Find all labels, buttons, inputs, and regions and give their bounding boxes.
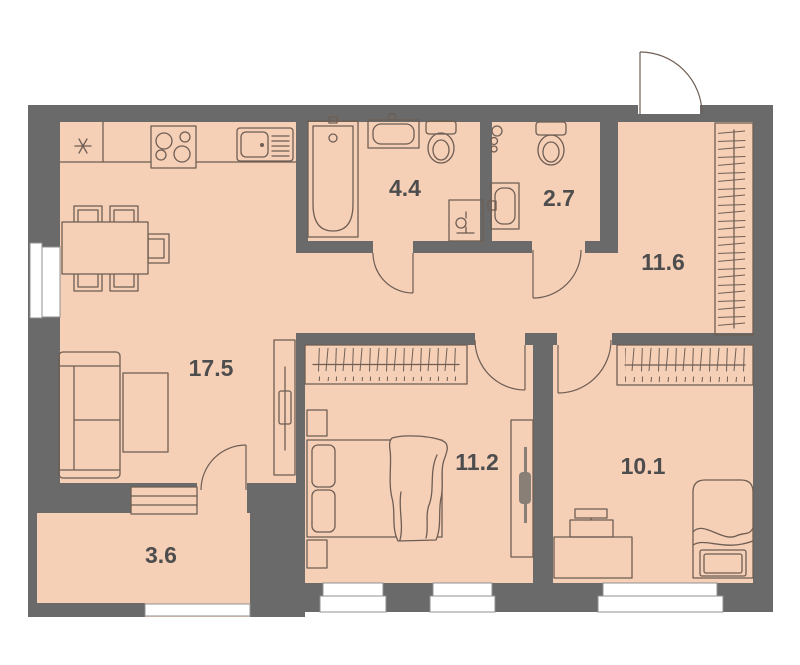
wall-bedroom1-bedroom2 [533, 345, 553, 583]
wall-bathroom-bottom-right [413, 241, 492, 253]
window-icon-bedroom1-a [320, 583, 386, 612]
balcony-door-opening [197, 483, 247, 513]
wardrobe-icon-bedroom2 [617, 345, 753, 385]
entrance-door-icon [640, 52, 702, 114]
window-icon-left-wall [30, 243, 60, 318]
room-label-toilet: 2.7 [543, 185, 575, 211]
wall-toilet-bottom-right [585, 241, 618, 253]
window-icon-balcony-glazing [145, 604, 250, 616]
room-label-hallway: 11.6 [641, 249, 685, 275]
balcony-cabinet-icon [131, 487, 197, 514]
wall-balcony-bottom [28, 603, 145, 617]
wall-living-bedroom1 [296, 333, 305, 483]
double-bed-icon [307, 436, 447, 541]
wall-balcony-left [28, 513, 37, 617]
wall-right [753, 105, 773, 612]
single-bed-icon [693, 480, 753, 578]
wall-toilet-hallway [600, 122, 618, 253]
wardrobe-icon-bedroom1 [305, 345, 467, 384]
wall-corner-block [273, 483, 305, 617]
wall-toilet-bottom-left [492, 241, 532, 253]
room-label-bedroom-1: 11.2 [455, 449, 499, 475]
wall-bathroom-bottom-left [296, 241, 373, 253]
wardrobe-icon-hallway [715, 123, 753, 335]
stove-icon [151, 126, 196, 168]
room-label-balcony: 3.6 [145, 542, 177, 568]
room-label-kitchen-living-room: 17.5 [189, 355, 234, 381]
blanket [390, 436, 448, 541]
wall-door-pier [525, 333, 557, 345]
floor-plan: 17.5 4.4 2.7 11.6 11.2 10.1 3.6 [0, 0, 800, 665]
wall-bedroom1-top [296, 333, 475, 345]
window-icon-bedroom2 [598, 583, 723, 612]
window-icon-bedroom1-b [430, 583, 495, 612]
room-label-bathroom: 4.4 [389, 175, 421, 201]
entrance-opening [638, 105, 700, 114]
wall-kitchen-bathroom [296, 122, 308, 253]
wall-balcony-right [250, 513, 273, 617]
room-label-bedroom-2: 10.1 [621, 453, 666, 479]
